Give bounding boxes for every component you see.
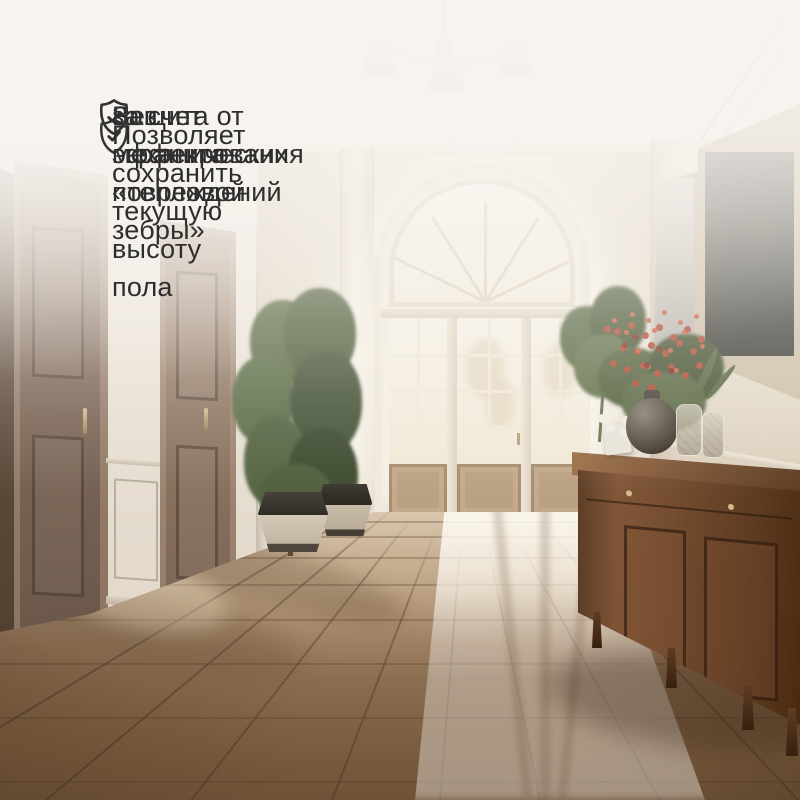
plant-pot — [258, 492, 328, 552]
arched-window — [374, 164, 590, 512]
glass-vase — [676, 404, 702, 456]
arch-muntin — [484, 202, 487, 302]
window-stile — [521, 318, 531, 516]
window-stile — [447, 318, 457, 516]
window-handle — [517, 433, 520, 445]
window-arch — [389, 179, 575, 307]
sideboard-door-panel — [704, 537, 778, 702]
chandelier-shade — [362, 44, 396, 74]
red-flowers — [612, 318, 617, 323]
window-leaf — [389, 318, 447, 464]
window-muntin — [389, 354, 447, 357]
door-panel — [176, 445, 218, 581]
wainscot-panel — [114, 478, 158, 581]
wainscot-wall — [106, 340, 166, 630]
window-bottom-panel — [389, 464, 447, 516]
door-handle — [204, 408, 208, 430]
glass-vase — [702, 412, 724, 458]
window-muntin — [389, 426, 447, 429]
window-muntin — [389, 390, 447, 393]
promo-image: Защита от механических повреждений за сч… — [0, 0, 800, 800]
white-orchid — [598, 414, 607, 423]
drawer-knob — [626, 490, 632, 497]
window-leaf — [457, 318, 521, 464]
door-handle — [83, 408, 87, 434]
red-flowers — [632, 334, 638, 340]
window-muntin — [457, 390, 521, 393]
chandelier — [352, 0, 542, 120]
window-bottom-panel — [457, 464, 521, 516]
crown-molding — [258, 144, 656, 154]
chandelier-shade — [498, 44, 532, 74]
chair-rail — [106, 458, 166, 467]
window-muntin — [457, 426, 521, 429]
round-vase — [626, 398, 678, 454]
drawer-knob — [728, 504, 734, 511]
red-flowers — [604, 326, 611, 333]
door-panel — [32, 435, 84, 598]
window-muntin — [457, 354, 521, 357]
window-transom — [381, 309, 583, 318]
